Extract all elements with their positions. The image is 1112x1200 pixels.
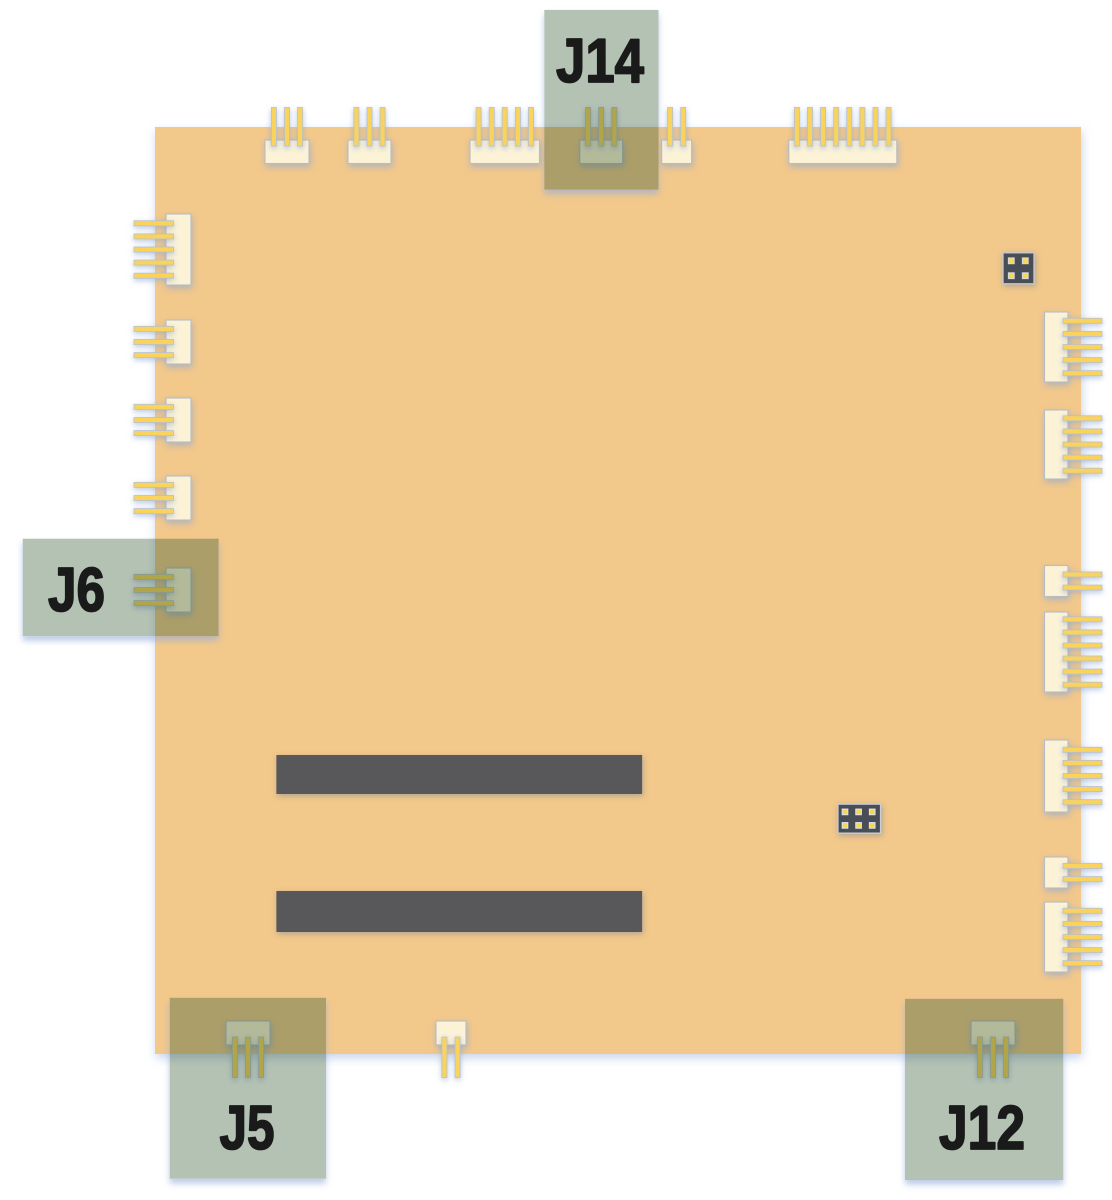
svg-text:J14: J14: [556, 27, 644, 96]
svg-text:J5: J5: [220, 1094, 275, 1163]
svg-text:J12: J12: [939, 1094, 1025, 1163]
svg-text:J6: J6: [48, 556, 105, 625]
